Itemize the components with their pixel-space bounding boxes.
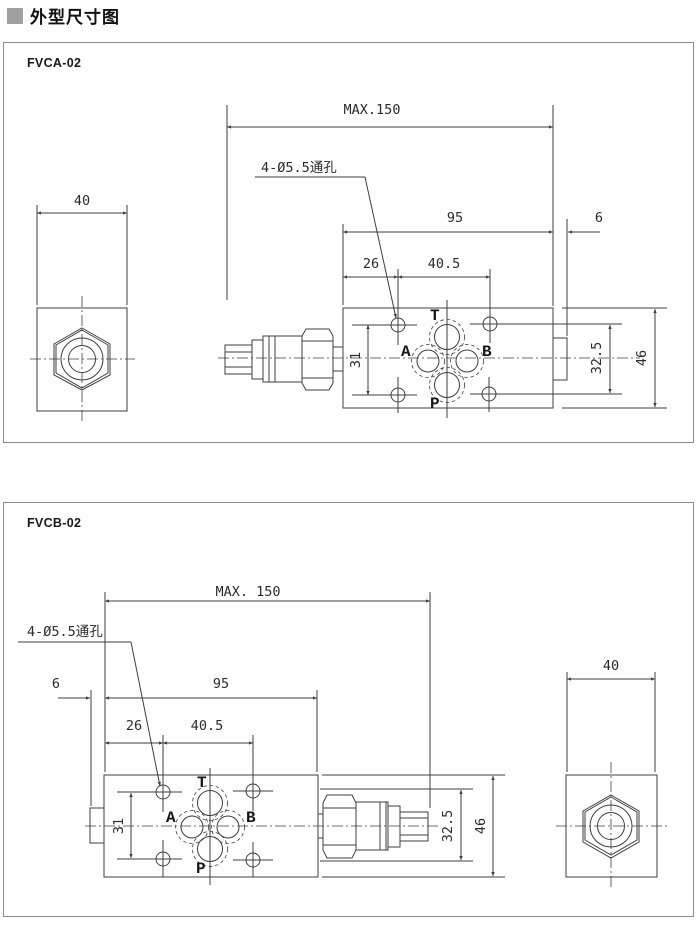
mount-hole-note-fvcb: 4-Ø5.5通孔	[27, 620, 103, 640]
port-label-p-fvca: P	[430, 396, 440, 412]
panel-fvcb-02	[3, 502, 694, 917]
dim-6-fvca: 6	[595, 210, 603, 226]
mount-hole-note-fvca: 4-Ø5.5通孔	[261, 156, 337, 176]
port-label-b-fvca: B	[482, 344, 492, 360]
dim-95-fvca: 95	[447, 210, 463, 226]
page-title: 外型尺寸图	[30, 3, 120, 28]
dim-40-5-fvca: 40.5	[428, 256, 461, 272]
dim-max-length-fvcb: MAX. 150	[215, 584, 280, 600]
dim-40-fvcb: 40	[603, 658, 619, 674]
dim-46-fvcb: 46	[473, 818, 489, 834]
section-bullet-square	[7, 8, 23, 24]
port-label-p-fvcb: P	[196, 861, 206, 877]
dim-40-5-fvcb: 40.5	[191, 718, 224, 734]
port-label-t-fvcb: T	[197, 775, 207, 791]
section-header: 外型尺寸图	[7, 3, 120, 28]
dim-40-fvca: 40	[74, 193, 90, 209]
dim-32-5-fvca: 32.5	[589, 342, 605, 375]
dim-6-fvcb: 6	[52, 676, 60, 692]
port-label-t-fvca: T	[430, 308, 440, 324]
catalog-page: 外型尺寸图	[0, 0, 700, 926]
dim-46-fvca: 46	[634, 350, 650, 366]
dim-26-fvca: 26	[363, 256, 379, 272]
dim-31-fvcb: 31	[111, 818, 127, 834]
dim-95-fvcb: 95	[213, 676, 229, 692]
dim-max-length-fvca: MAX.150	[344, 102, 401, 118]
dim-32-5-fvcb: 32.5	[440, 810, 456, 843]
port-label-b-fvcb: B	[246, 810, 256, 826]
port-label-a-fvcb: A	[166, 810, 176, 826]
model-label-fvcb: FVCB-02	[27, 516, 81, 530]
dim-26-fvcb: 26	[126, 718, 142, 734]
port-label-a-fvca: A	[401, 344, 411, 360]
dim-31-fvca: 31	[348, 352, 364, 368]
model-label-fvca: FVCA-02	[27, 56, 81, 70]
